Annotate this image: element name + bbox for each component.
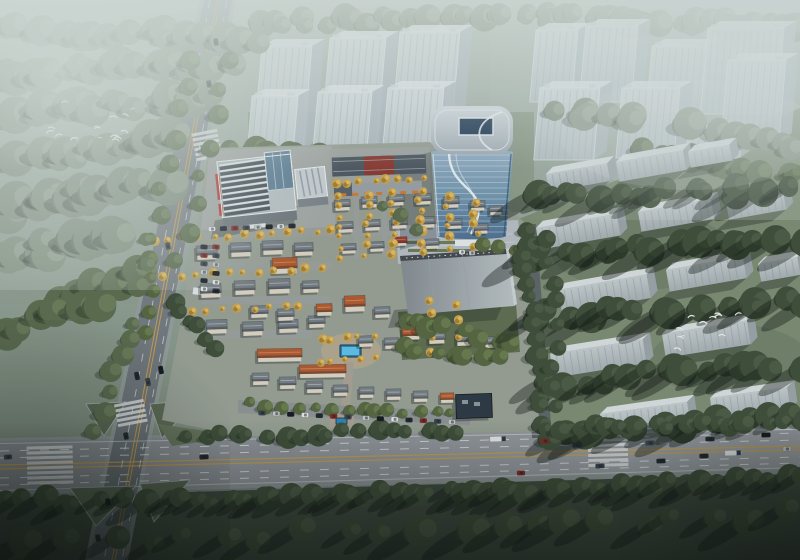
scene-canvas <box>0 0 800 560</box>
color-grade-tint <box>0 0 800 560</box>
atmosphere <box>0 0 800 560</box>
aerial-masterplan-rendering <box>0 0 800 560</box>
